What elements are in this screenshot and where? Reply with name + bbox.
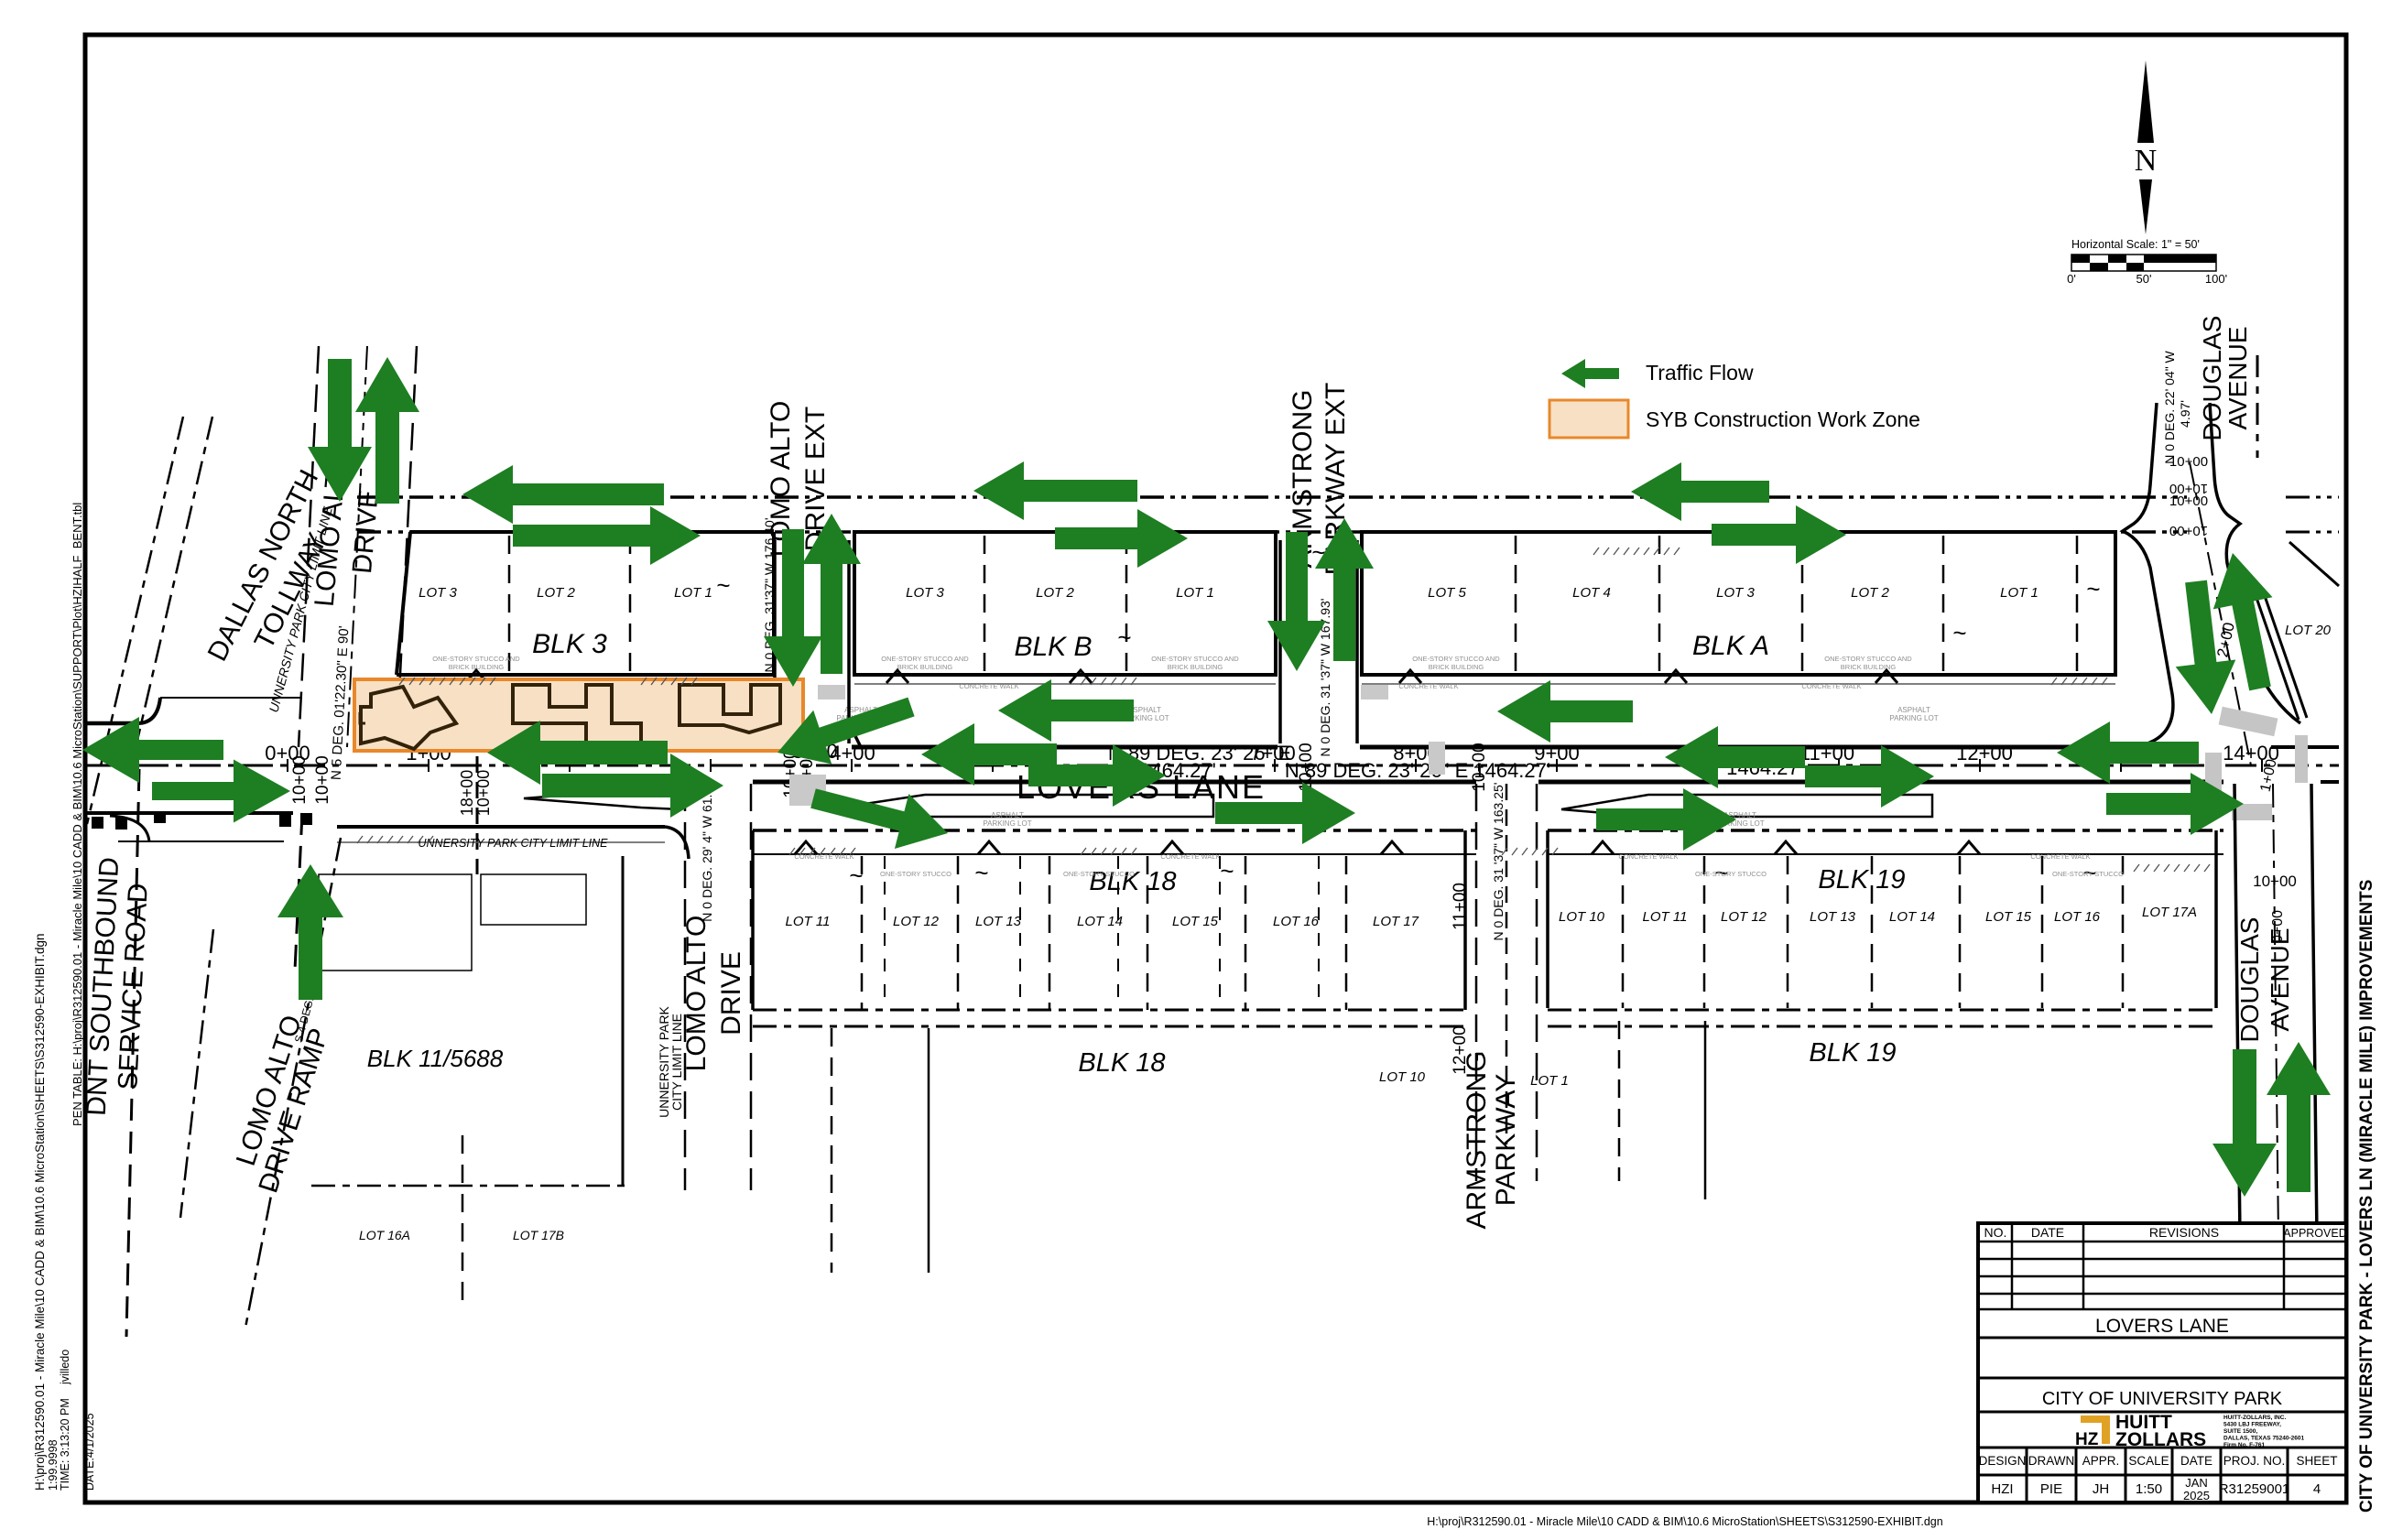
svg-text:LOT 1: LOT 1 [674, 585, 712, 601]
svg-text:5430 LBJ FREEWAY,: 5430 LBJ FREEWAY, [2223, 1422, 2281, 1428]
svg-text:LOT 4: LOT 4 [1572, 585, 1611, 601]
svg-text:LOT 13: LOT 13 [975, 914, 1022, 929]
svg-text:LOT 15: LOT 15 [1172, 914, 1219, 929]
svg-text:LOT 2: LOT 2 [1036, 585, 1074, 601]
svg-text:ONE-STORY STUCCO: ONE-STORY STUCCO [880, 870, 951, 878]
svg-text:10+00: 10+00 [2253, 873, 2297, 890]
svg-text:LOT 13: LOT 13 [1810, 909, 1856, 925]
svg-text:12+00: 12+00 [1451, 1025, 1470, 1074]
svg-text:LOT 2: LOT 2 [1851, 585, 1889, 601]
svg-text:0': 0' [2067, 272, 2076, 286]
svg-text:ONE-STORY STUCCO AND: ONE-STORY STUCCO AND [881, 655, 969, 663]
svg-text:N 0 DEG. 29' 4" W 61.89': N 0 DEG. 29' 4" W 61.89' [700, 777, 714, 921]
svg-text:50': 50' [2136, 272, 2152, 286]
svg-text:DRAWN: DRAWN [2028, 1454, 2075, 1468]
svg-text:N 0 DEG. 22' 04" W: N 0 DEG. 22' 04" W [2162, 350, 2177, 463]
svg-text:BLK 3: BLK 3 [532, 629, 607, 659]
svg-text:H:\proj\R312590.01 - Miracle M: H:\proj\R312590.01 - Miracle Mile\10 CAD… [33, 933, 47, 1491]
svg-text:ONE-STORY STUCCO: ONE-STORY STUCCO [1695, 870, 1767, 878]
svg-text:10+00: 10+00 [2169, 493, 2208, 509]
svg-text:BRICK BUILDING: BRICK BUILDING [1168, 663, 1223, 671]
svg-text:TIME: 3:13:20 PM: TIME: 3:13:20 PM [59, 1398, 71, 1491]
svg-text:18+00: 18+00 [458, 770, 476, 817]
svg-text:BLK 18: BLK 18 [1078, 1048, 1165, 1078]
svg-text:SYB Construction Work Zone: SYB Construction Work Zone [1646, 407, 1920, 431]
svg-text:LOT 17B: LOT 17B [513, 1228, 564, 1242]
svg-text:BLK B: BLK B [1014, 632, 1092, 662]
svg-text:LOVERS LANE: LOVERS LANE [2095, 1316, 2229, 1337]
svg-text:DATE:4/1/2025: DATE:4/1/2025 [83, 1413, 96, 1491]
svg-text:Horizontal Scale: 1" = 50': Horizontal Scale: 1" = 50' [2071, 238, 2200, 251]
svg-text:CITY OF UNIVERSITY PARK - LOVE: CITY OF UNIVERSITY PARK - LOVERS LN (MIR… [2357, 880, 2376, 1513]
svg-text:R31259001: R31259001 [2219, 1481, 2290, 1497]
svg-text:ONE-STORY STUCCO AND: ONE-STORY STUCCO AND [1412, 655, 1500, 663]
svg-text:H:\proj\R312590.01 - Miracle M: H:\proj\R312590.01 - Miracle Mile\10 CAD… [1427, 1515, 1942, 1528]
svg-text:4.97': 4.97' [2178, 400, 2192, 428]
svg-text:NO.: NO. [1984, 1225, 2007, 1240]
svg-text:~: ~ [1220, 857, 1234, 884]
svg-text:10+00: 10+00 [2169, 523, 2208, 538]
svg-text:LOT 15: LOT 15 [1985, 909, 2032, 925]
svg-text:SHEET: SHEET [2296, 1454, 2337, 1468]
svg-text:ZOLLARS: ZOLLARS [2115, 1429, 2206, 1450]
svg-text:HZ: HZ [2075, 1430, 2099, 1449]
svg-text:1:50: 1:50 [2136, 1481, 2162, 1497]
svg-text:LOT 1: LOT 1 [1176, 585, 1214, 601]
svg-text:ONE-STORY STUCCO AND: ONE-STORY STUCCO AND [432, 655, 520, 663]
svg-text:CONCRETE WALK: CONCRETE WALK [1801, 682, 1861, 690]
svg-text:1:99.9998: 1:99.9998 [47, 1439, 60, 1491]
svg-text:BRICK BUILDING: BRICK BUILDING [1429, 663, 1484, 671]
svg-text:CONCRETE WALK: CONCRETE WALK [1398, 682, 1458, 690]
svg-text:PEN TABLE: H:\proj\R312590.01: PEN TABLE: H:\proj\R312590.01 - Miracle … [71, 503, 84, 1126]
svg-text:JH: JH [2093, 1481, 2109, 1497]
svg-text:LOT 1: LOT 1 [2000, 585, 2039, 601]
svg-text:LOT 12: LOT 12 [1721, 909, 1767, 925]
svg-text:APPROVED: APPROVED [2283, 1227, 2346, 1240]
svg-text:REVISIONS: REVISIONS [2149, 1225, 2219, 1240]
svg-text:~: ~ [2086, 575, 2100, 602]
svg-text:LOT 11: LOT 11 [786, 914, 831, 929]
svg-text:ONE-STORY STUCCO: ONE-STORY STUCCO [2052, 870, 2124, 878]
svg-text:HZI: HZI [1991, 1481, 2013, 1497]
svg-text:11+00: 11+00 [1451, 883, 1470, 930]
svg-text:CITY OF UNIVERSITY PARK: CITY OF UNIVERSITY PARK [2042, 1389, 2283, 1409]
svg-text:PIE: PIE [2040, 1481, 2062, 1497]
svg-text:LOT 3: LOT 3 [419, 585, 457, 601]
svg-text:DALLAS, TEXAS 75240-2601: DALLAS, TEXAS 75240-2601 [2223, 1436, 2305, 1442]
svg-text:LOT 17A: LOT 17A [2142, 905, 2197, 920]
svg-text:CONCRETE WALK: CONCRETE WALK [2030, 852, 2090, 861]
svg-text:PARKING LOT: PARKING LOT [983, 819, 1031, 828]
svg-text:DOUGLAS: DOUGLAS [2235, 917, 2264, 1043]
svg-text:ARMSTRONG: ARMSTRONG [1462, 1051, 1492, 1230]
svg-text:Traffic Flow: Traffic Flow [1646, 361, 1754, 385]
svg-text:LOT 11: LOT 11 [1643, 909, 1688, 925]
svg-text:12+00: 12+00 [1956, 742, 2013, 765]
svg-text:~: ~ [974, 859, 988, 886]
svg-text:ONE-STORY STUCCO AND: ONE-STORY STUCCO AND [1151, 655, 1239, 663]
svg-text:2025: 2025 [2183, 1489, 2210, 1502]
svg-text:SUITE 1500,: SUITE 1500, [2223, 1428, 2257, 1435]
svg-text:LOT 17: LOT 17 [1373, 914, 1419, 929]
svg-text:100': 100' [2205, 272, 2227, 286]
svg-text:~: ~ [1117, 624, 1131, 651]
svg-text:BLK 19: BLK 19 [1809, 1038, 1896, 1068]
svg-text:CONCRETE WALK: CONCRETE WALK [1618, 852, 1678, 861]
svg-text:N 0 DEG. 31 '37" W 163.25': N 0 DEG. 31 '37" W 163.25' [1491, 783, 1506, 941]
svg-text:UNNERSITY PARK CITY LIMIT: UNNERSITY PARK CITY LIMIT LINE [419, 837, 609, 850]
svg-text:DESIGN: DESIGN [1979, 1454, 2027, 1468]
svg-text:AVENUE: AVENUE [2223, 326, 2252, 429]
svg-text:N 89 DEG. 23' 26" E 1464.27': N 89 DEG. 23' 26" E 1464.27' [1285, 759, 1550, 782]
svg-text:BLK A: BLK A [1692, 631, 1769, 661]
svg-text:~: ~ [716, 571, 730, 599]
svg-text:0+00: 0+00 [2270, 910, 2286, 943]
svg-text:LOT 3: LOT 3 [1716, 585, 1755, 601]
svg-text:LOT 3: LOT 3 [906, 585, 944, 601]
svg-text:BLK 11/5688: BLK 11/5688 [367, 1045, 504, 1072]
svg-text:LOT 16: LOT 16 [2054, 909, 2101, 925]
svg-text:DOUGLAS: DOUGLAS [2198, 316, 2226, 441]
svg-text:PARKWAY: PARKWAY [1491, 1074, 1521, 1206]
svg-text:LOT 16A: LOT 16A [359, 1228, 410, 1242]
svg-text:~: ~ [849, 862, 863, 889]
svg-text:CONCRETE WALK: CONCRETE WALK [959, 682, 1018, 690]
svg-text:DATE: DATE [2180, 1454, 2212, 1468]
svg-text:10+00: 10+00 [474, 770, 493, 817]
svg-text:~: ~ [1952, 619, 1966, 646]
svg-text:BRICK BUILDING: BRICK BUILDING [897, 663, 953, 671]
svg-text:Firm No. F-761: Firm No. F-761 [2223, 1442, 2266, 1448]
svg-text:HUITT-ZOLLARS, INC.: HUITT-ZOLLARS, INC. [2223, 1415, 2286, 1421]
svg-text:10+00: 10+00 [2169, 454, 2208, 470]
svg-text:LOT 2: LOT 2 [537, 585, 575, 601]
svg-text:DRIVE: DRIVE [716, 951, 746, 1036]
svg-text:11+00: 11+00 [1799, 742, 1854, 765]
svg-text:CONCRETE WALK: CONCRETE WALK [794, 852, 853, 861]
svg-text:10+00: 10+00 [290, 755, 310, 804]
svg-text:PROJ. NO.: PROJ. NO. [2223, 1454, 2286, 1468]
svg-text:APPR.: APPR. [2082, 1454, 2120, 1468]
svg-text:4: 4 [2313, 1481, 2321, 1497]
svg-text:LOT 10: LOT 10 [1559, 909, 1605, 925]
svg-text:LOT 14: LOT 14 [1077, 914, 1123, 929]
svg-text:CITY LIMIT LINE: CITY LIMIT LINE [669, 1014, 684, 1111]
svg-text:ASPHALT: ASPHALT [991, 811, 1024, 819]
svg-text:LOT 5: LOT 5 [1428, 585, 1466, 601]
svg-text:PARKING LOT: PARKING LOT [1889, 714, 1938, 722]
svg-text:CONCRETE WALK: CONCRETE WALK [1160, 852, 1220, 861]
svg-text:LOT 14: LOT 14 [1889, 909, 1935, 925]
svg-text:JAN: JAN [2185, 1476, 2208, 1490]
svg-text:LOT 10: LOT 10 [1379, 1069, 1426, 1085]
svg-text:LOT 20: LOT 20 [2285, 623, 2332, 638]
svg-text:LOT 12: LOT 12 [893, 914, 940, 929]
svg-text:ONE-STORY STUCCO: ONE-STORY STUCCO [1063, 870, 1135, 878]
svg-text:N: N [2135, 144, 2158, 178]
svg-text:SCALE: SCALE [2128, 1454, 2169, 1468]
svg-text:jvilledo: jvilledo [59, 1350, 71, 1385]
svg-text:ASPHALT: ASPHALT [1897, 706, 1930, 714]
svg-text:BLK 19: BLK 19 [1818, 865, 1905, 895]
svg-text:ONE-STORY STUCCO AND: ONE-STORY STUCCO AND [1824, 655, 1912, 663]
svg-text:LOT 16: LOT 16 [1273, 914, 1320, 929]
svg-text:LOMO ALTO: LOMO ALTO [681, 916, 712, 1072]
svg-text:DATE: DATE [2031, 1225, 2064, 1240]
